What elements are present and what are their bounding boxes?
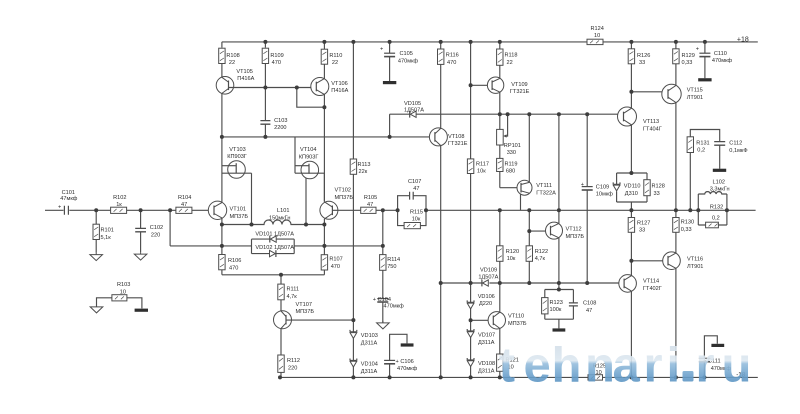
svg-text:МП37Б: МП37Б	[335, 195, 354, 201]
svg-text:R101: R101	[101, 228, 114, 234]
svg-text:22к: 22к	[359, 169, 368, 175]
svg-text:VD102 1Д507А: VD102 1Д507А	[255, 245, 294, 251]
svg-text:R114: R114	[387, 257, 400, 263]
svg-text:Д311А: Д311А	[478, 368, 495, 374]
svg-text:C103: C103	[274, 118, 287, 124]
svg-text:VT109: VT109	[511, 82, 527, 88]
svg-text:220: 220	[288, 365, 297, 371]
svg-text:R112: R112	[287, 358, 300, 364]
svg-text:R109: R109	[270, 53, 283, 59]
svg-text:Д311А: Д311А	[361, 369, 378, 375]
svg-text:0,1мкФ: 0,1мкФ	[729, 148, 747, 154]
svg-text:22: 22	[229, 60, 235, 66]
svg-text:680: 680	[506, 169, 515, 175]
svg-text:R103: R103	[117, 282, 130, 288]
svg-text:C109: C109	[596, 184, 609, 190]
svg-text:VT111: VT111	[536, 183, 552, 189]
svg-text:VT113: VT113	[643, 119, 659, 125]
svg-text:+ C106: + C106	[396, 359, 414, 365]
svg-text:10: 10	[594, 33, 600, 39]
svg-text:C112: C112	[729, 141, 742, 147]
svg-text:0,2: 0,2	[697, 148, 705, 154]
svg-text:R120: R120	[506, 249, 519, 255]
svg-text:33: 33	[639, 60, 645, 66]
svg-text:1к: 1к	[116, 202, 122, 208]
svg-text:t: t	[499, 339, 515, 393]
svg-text:МП37Б: МП37Б	[508, 321, 527, 327]
svg-text:П416А: П416А	[331, 88, 348, 94]
svg-text:C110: C110	[714, 51, 727, 57]
svg-text:VT115: VT115	[687, 88, 703, 94]
svg-text:470: 470	[447, 60, 456, 66]
svg-text:+: +	[581, 182, 584, 188]
svg-text:0,33: 0,33	[682, 60, 693, 66]
svg-text:0,2: 0,2	[712, 216, 720, 222]
svg-text:ЛТ901: ЛТ901	[687, 95, 703, 101]
svg-text:33: 33	[639, 228, 645, 234]
svg-text:VT101: VT101	[230, 207, 246, 213]
svg-text:47: 47	[181, 202, 187, 208]
svg-text:Д311А: Д311А	[361, 340, 378, 346]
svg-text:L101: L101	[277, 208, 289, 214]
svg-text:C101: C101	[62, 190, 75, 196]
svg-text:3,3мкГн: 3,3мкГн	[710, 187, 730, 193]
svg-text:VT105: VT105	[236, 69, 252, 75]
svg-text:R117: R117	[476, 161, 489, 167]
svg-text:+: +	[380, 47, 383, 53]
svg-text:МП37Б: МП37Б	[230, 214, 249, 220]
svg-text:470мкф: 470мкф	[398, 58, 419, 64]
svg-text:VT104: VT104	[300, 147, 316, 153]
svg-text:10мкф: 10мкф	[596, 192, 614, 198]
svg-text:R106: R106	[228, 258, 241, 264]
svg-text:e: e	[524, 339, 551, 393]
svg-text:r: r	[696, 339, 715, 393]
svg-text:КП903Г: КП903Г	[299, 154, 319, 160]
svg-text:VD105: VD105	[404, 101, 421, 107]
svg-text:u: u	[722, 339, 752, 393]
svg-text:R116: R116	[446, 53, 459, 59]
svg-text:47: 47	[367, 202, 373, 208]
svg-text:R113: R113	[358, 162, 371, 168]
svg-text:10к: 10к	[477, 169, 486, 175]
svg-text:R104: R104	[178, 195, 191, 201]
svg-text:R130: R130	[681, 220, 694, 226]
svg-text:+: +	[696, 46, 699, 52]
svg-text:VT110: VT110	[508, 314, 524, 320]
svg-text:VT112: VT112	[566, 227, 582, 233]
svg-text:R105: R105	[364, 195, 377, 201]
svg-text:R128: R128	[652, 184, 665, 190]
svg-text:R132: R132	[710, 204, 723, 210]
svg-text:C107: C107	[408, 179, 421, 185]
svg-text:VD106: VD106	[478, 294, 495, 300]
svg-text:0,33: 0,33	[681, 227, 692, 233]
svg-text:R127: R127	[637, 221, 650, 227]
svg-text:470: 470	[272, 60, 281, 66]
svg-text:VT107: VT107	[296, 302, 312, 308]
svg-text:Д310: Д310	[625, 191, 638, 197]
svg-text:100к: 100к	[550, 307, 562, 313]
svg-text:VD109: VD109	[480, 268, 497, 274]
svg-text:R107: R107	[329, 257, 342, 263]
svg-text:R126: R126	[637, 53, 650, 59]
svg-text:C108: C108	[583, 301, 596, 307]
svg-text:+ C104: + C104	[373, 297, 391, 303]
svg-text:150мкГн: 150мкГн	[269, 215, 290, 221]
svg-text:ЛТ901: ЛТ901	[687, 264, 703, 270]
svg-text:+: +	[58, 205, 61, 211]
svg-text:VT114: VT114	[643, 279, 659, 285]
svg-text:RP101: RP101	[504, 143, 521, 149]
svg-text:ГТ321Е: ГТ321Е	[510, 89, 530, 95]
svg-text:10к: 10к	[412, 216, 421, 222]
svg-text:VD108: VD108	[478, 361, 495, 367]
svg-text:R131: R131	[696, 140, 709, 146]
svg-text:n: n	[585, 339, 615, 393]
svg-text:4,7к: 4,7к	[535, 256, 546, 262]
svg-text:КП903Г: КП903Г	[227, 154, 247, 160]
svg-text:R119: R119	[505, 161, 518, 167]
svg-text:R102: R102	[113, 195, 126, 201]
svg-text:R122: R122	[535, 249, 548, 255]
svg-text:МП37Б: МП37Б	[296, 309, 315, 315]
svg-text:33: 33	[654, 191, 660, 197]
svg-text:L102: L102	[713, 179, 725, 185]
svg-text:470мкф: 470мкф	[397, 366, 418, 372]
svg-text:470: 470	[331, 264, 340, 270]
svg-text:47: 47	[413, 186, 419, 192]
svg-text:1Д507А: 1Д507А	[478, 274, 498, 280]
svg-text:VD104: VD104	[361, 362, 378, 368]
svg-text:ГТ402Г: ГТ402Г	[643, 286, 662, 292]
svg-text:R108: R108	[226, 53, 239, 59]
svg-text:VT103: VT103	[229, 147, 245, 153]
svg-text:2200: 2200	[274, 125, 286, 131]
svg-text:h: h	[552, 339, 582, 393]
svg-text:47: 47	[586, 308, 592, 314]
svg-text:5,1к: 5,1к	[101, 235, 112, 241]
svg-text:22: 22	[332, 60, 338, 66]
svg-text:R124: R124	[591, 26, 604, 32]
svg-text:470мкф: 470мкф	[384, 304, 405, 310]
svg-text:1Д507А: 1Д507А	[404, 107, 424, 113]
svg-text:C102: C102	[150, 225, 163, 231]
svg-text:VD110: VD110	[624, 184, 641, 190]
svg-text:ГТ404Г: ГТ404Г	[643, 126, 662, 132]
svg-text:330: 330	[507, 150, 516, 156]
svg-text:R111: R111	[287, 287, 300, 293]
svg-text:+18: +18	[737, 37, 749, 44]
svg-text:22: 22	[507, 60, 513, 66]
svg-text:i: i	[667, 339, 681, 393]
svg-text:C105: C105	[400, 51, 413, 57]
svg-text:П416А: П416А	[237, 76, 254, 82]
svg-text:470мкф: 470мкф	[712, 58, 733, 64]
svg-text:VT102: VT102	[335, 188, 351, 194]
svg-text:10: 10	[120, 289, 126, 295]
svg-text:R115: R115	[410, 210, 423, 216]
svg-text:R118: R118	[505, 53, 518, 59]
svg-text:VT116: VT116	[687, 257, 703, 263]
svg-text:Д311А: Д311А	[478, 340, 495, 346]
svg-text:VD101 1Д507А: VD101 1Д507А	[255, 232, 294, 238]
svg-text:470: 470	[229, 265, 238, 271]
svg-text:47мкф: 47мкф	[60, 196, 78, 202]
svg-text:Д220: Д220	[479, 301, 492, 307]
svg-text:a: a	[613, 339, 641, 393]
svg-text:ГТ322А: ГТ322А	[536, 190, 556, 196]
svg-text:750: 750	[387, 264, 396, 270]
svg-text:10к: 10к	[507, 256, 516, 262]
svg-text:R110: R110	[329, 53, 342, 59]
svg-text:VT108: VT108	[448, 134, 464, 140]
svg-text:VD107: VD107	[478, 333, 495, 339]
svg-text:VD103: VD103	[361, 333, 378, 339]
svg-text:VT106: VT106	[331, 81, 347, 87]
svg-text:R129: R129	[682, 53, 695, 59]
svg-text:r: r	[644, 339, 663, 393]
svg-text:R123: R123	[550, 300, 563, 306]
svg-text:220: 220	[151, 232, 160, 238]
svg-text:МП37Б: МП37Б	[566, 234, 585, 240]
svg-text:ГТ321Е: ГТ321Е	[448, 141, 468, 147]
svg-text:4,7к: 4,7к	[287, 294, 298, 300]
